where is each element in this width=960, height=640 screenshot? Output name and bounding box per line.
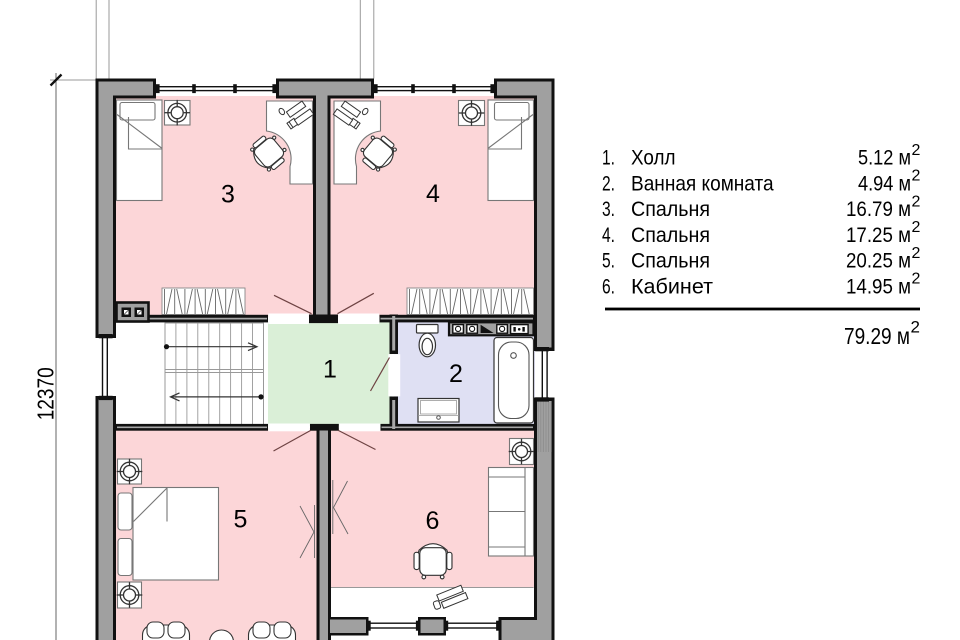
svg-text:1.: 1. xyxy=(602,146,615,170)
svg-text:4: 4 xyxy=(426,180,440,208)
svg-text:Спальня: Спальня xyxy=(631,197,710,221)
svg-text:2: 2 xyxy=(912,142,921,159)
svg-text:79.29 м: 79.29 м xyxy=(844,323,910,349)
svg-text:5.12 м: 5.12 м xyxy=(858,146,911,170)
svg-text:6.: 6. xyxy=(602,274,615,298)
svg-text:Холл: Холл xyxy=(631,146,676,170)
svg-text:2: 2 xyxy=(912,219,921,236)
svg-text:14.95 м: 14.95 м xyxy=(846,274,911,298)
svg-text:Спальня: Спальня xyxy=(631,249,710,273)
svg-text:3: 3 xyxy=(221,181,235,209)
svg-text:5: 5 xyxy=(234,506,248,534)
svg-text:2: 2 xyxy=(449,360,463,388)
svg-text:2: 2 xyxy=(912,193,921,210)
svg-text:2: 2 xyxy=(912,271,921,288)
svg-text:4.94 м: 4.94 м xyxy=(858,171,911,195)
svg-text:17.25 м: 17.25 м xyxy=(846,223,911,247)
svg-text:2: 2 xyxy=(912,245,921,262)
svg-text:20.25 м: 20.25 м xyxy=(846,249,911,273)
svg-text:5.: 5. xyxy=(602,249,615,273)
svg-text:4.: 4. xyxy=(602,223,615,247)
svg-text:3.: 3. xyxy=(602,197,615,221)
svg-text:Ванная комната: Ванная комната xyxy=(631,171,774,195)
svg-text:2.: 2. xyxy=(602,171,615,195)
svg-text:6: 6 xyxy=(426,507,440,535)
svg-text:Спальня: Спальня xyxy=(631,223,710,247)
svg-text:16.79 м: 16.79 м xyxy=(846,197,911,221)
svg-text:1: 1 xyxy=(323,356,337,384)
svg-text:2: 2 xyxy=(911,318,920,337)
svg-text:12370: 12370 xyxy=(33,367,59,420)
svg-text:Кабинет: Кабинет xyxy=(631,274,713,298)
svg-text:2: 2 xyxy=(912,168,921,185)
